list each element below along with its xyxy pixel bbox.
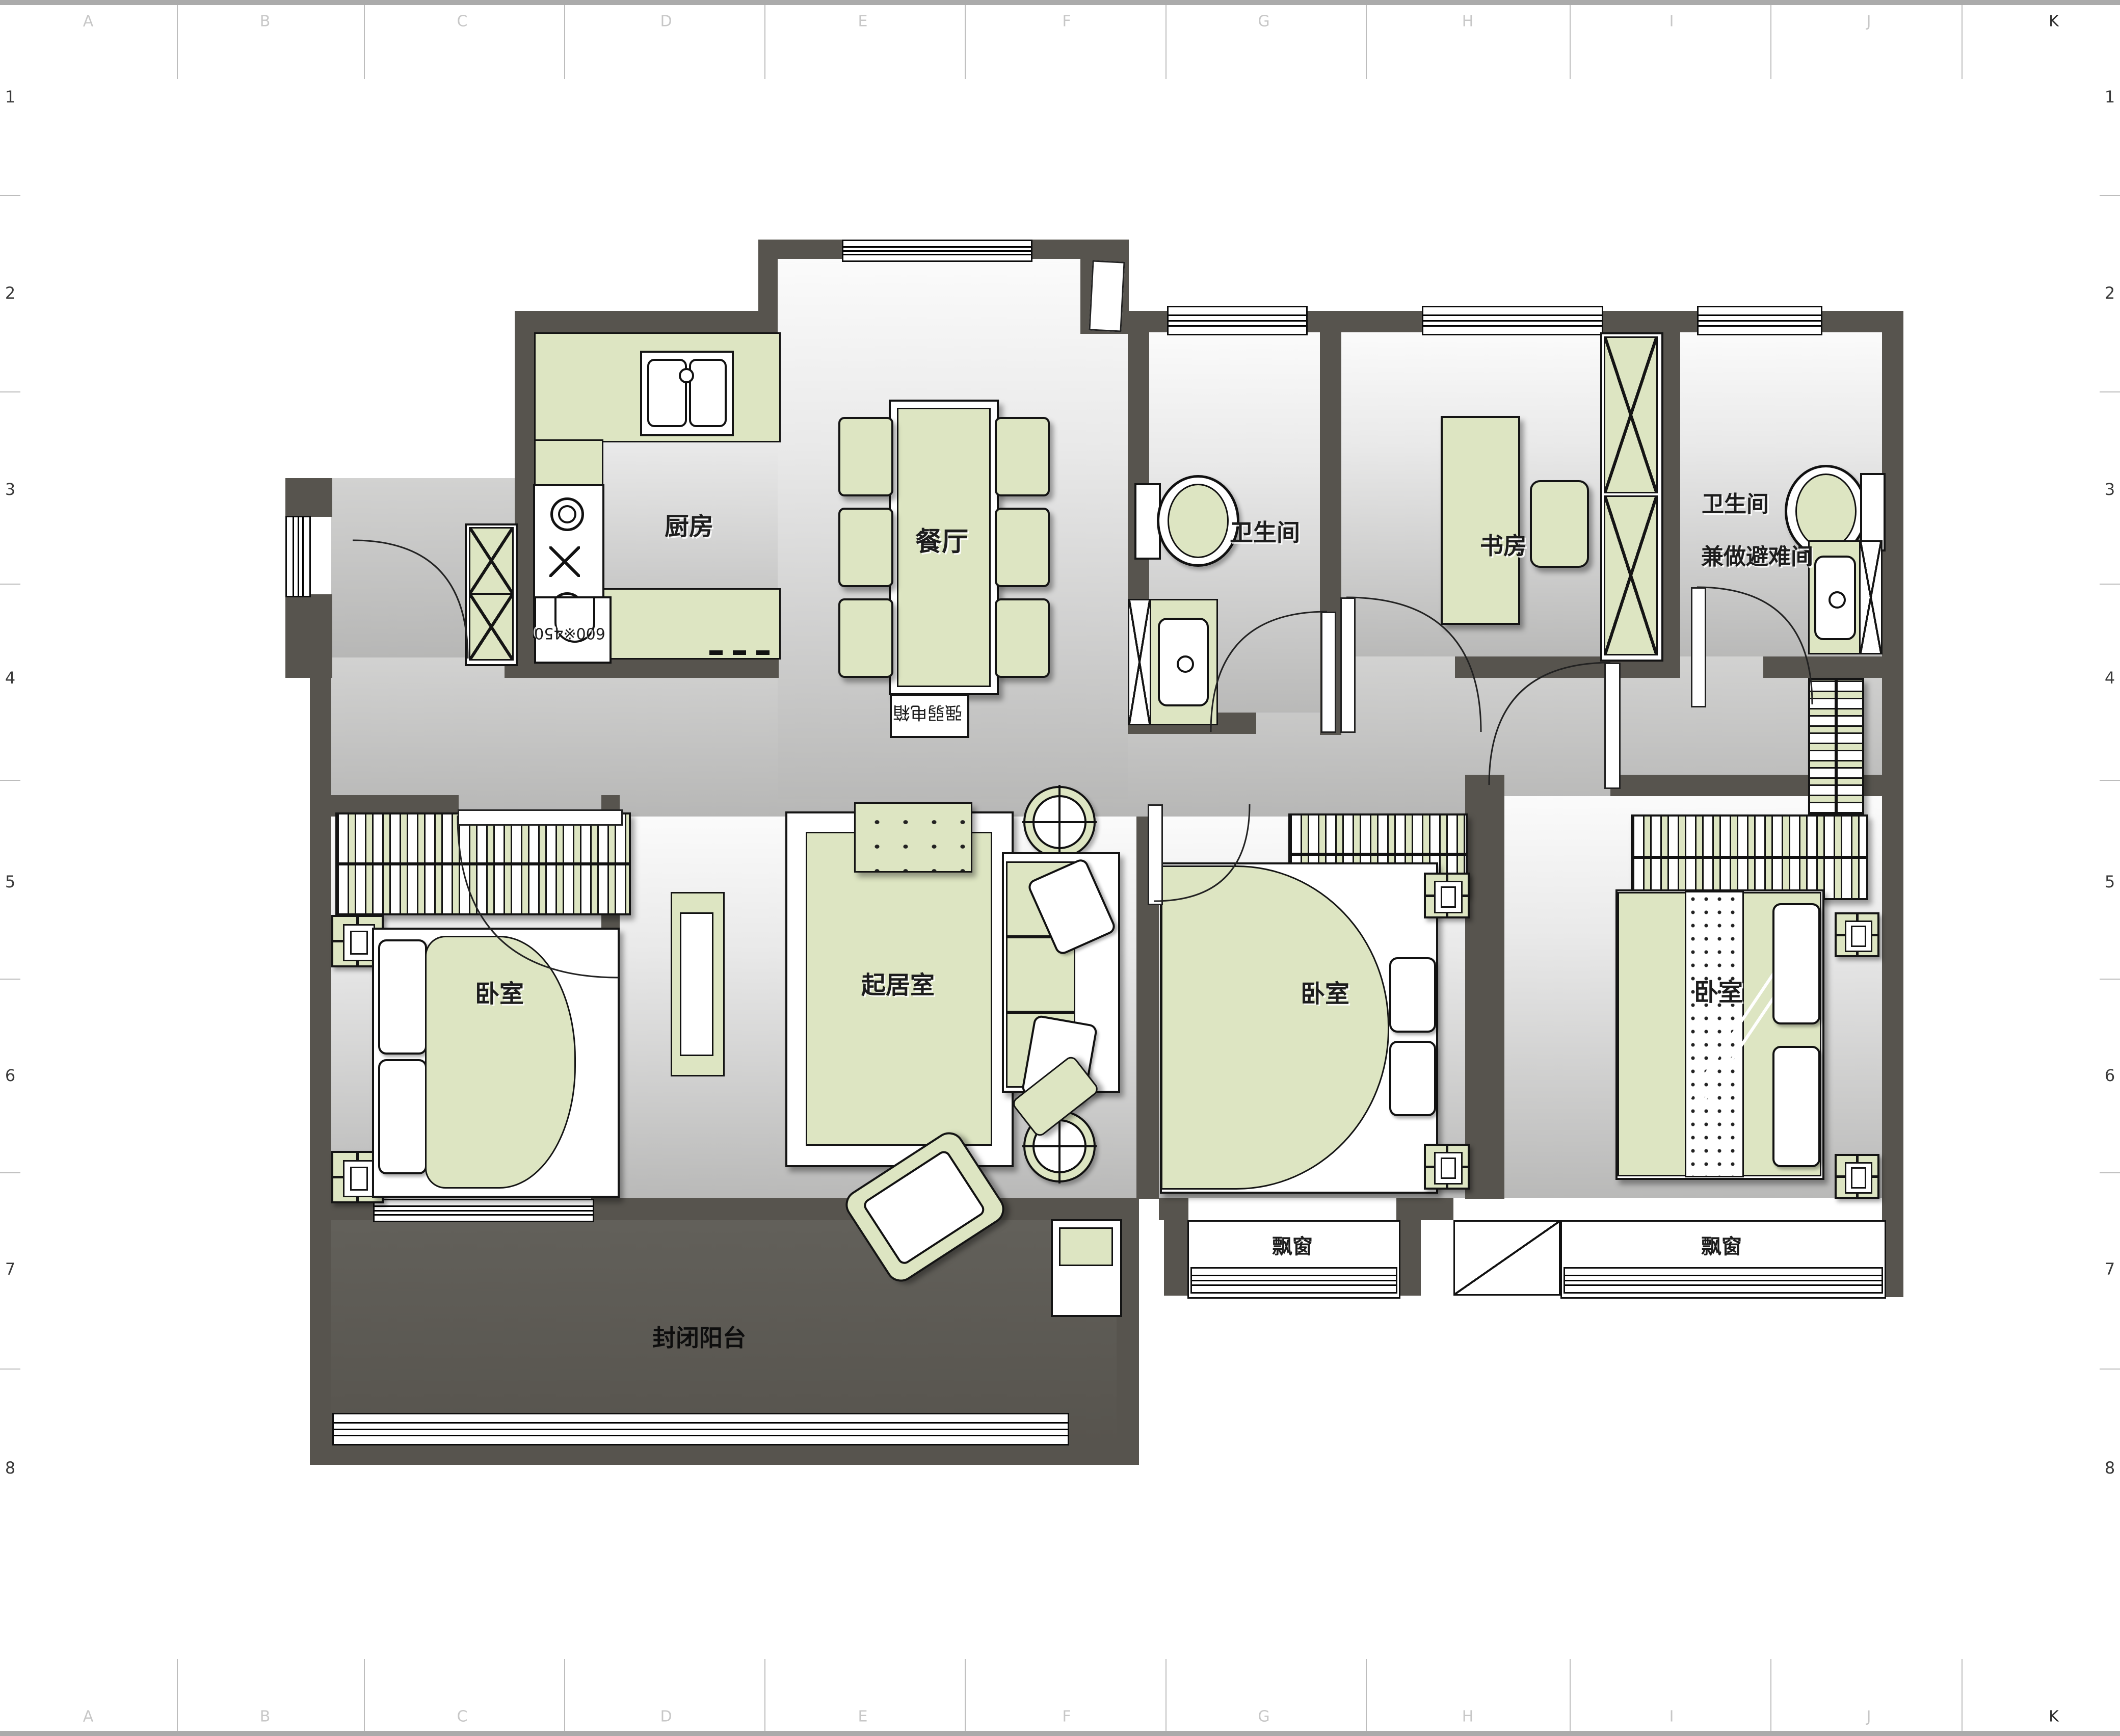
door-arc <box>353 540 468 659</box>
grid-letter-bottom: C <box>457 1708 468 1726</box>
grid-tick <box>2100 391 2120 392</box>
door-arc <box>1346 597 1481 732</box>
grid-tick <box>364 1659 365 1731</box>
grid-letter-top: F <box>1062 13 1071 31</box>
grid-letter-bottom: G <box>1258 1708 1269 1726</box>
grid-tick <box>965 5 966 79</box>
grid-tick <box>0 780 20 781</box>
grid-number-right: 8 <box>2105 1458 2115 1478</box>
grid-number-right: 5 <box>2105 872 2115 891</box>
grid-letter-bottom: A <box>83 1708 94 1726</box>
grid-tick <box>0 391 20 392</box>
grid-letter-bottom: I <box>1669 1708 1674 1726</box>
grid-letter-bottom: D <box>660 1708 672 1726</box>
grid-tick <box>764 1659 765 1731</box>
grid-tick <box>1366 1659 1367 1731</box>
grid-tick <box>965 1659 966 1731</box>
grid-number-left: 6 <box>5 1066 15 1085</box>
grid-tick <box>364 5 365 79</box>
grid-letter-bottom: H <box>1462 1708 1474 1726</box>
grid-tick <box>0 1172 20 1173</box>
grid-tick <box>0 584 20 585</box>
grid-tick <box>1570 1659 1571 1731</box>
grid-number-left: 5 <box>5 872 15 891</box>
grid-number-left: 4 <box>5 668 15 688</box>
grid-number-right: 4 <box>2105 668 2115 688</box>
grid-tick <box>0 979 20 980</box>
grid-tick <box>1962 5 1963 79</box>
grid-tick <box>764 5 765 79</box>
grid-letter-top: J <box>1867 13 1871 31</box>
grid-number-right: 7 <box>2105 1259 2115 1279</box>
grid-letter-top: E <box>858 13 868 31</box>
grid-letter-bottom: F <box>1062 1708 1071 1726</box>
grid-number-left: 3 <box>5 480 15 499</box>
grid-number-left: 2 <box>5 283 15 303</box>
grid-tick <box>1770 1659 1771 1731</box>
grid-tick <box>1165 1659 1167 1731</box>
grid-tick <box>1770 5 1771 79</box>
floorplan-canvas: 600※450 厨房 餐厅 卫生间 书房 卫生间 兼做避难间 强弱电箱 卧室 <box>0 0 2120 1736</box>
door-arc <box>1489 663 1610 785</box>
door-arc <box>458 816 619 978</box>
door-arc <box>1697 587 1812 704</box>
grid-number-right: 6 <box>2105 1066 2115 1085</box>
grid-letter-bottom: E <box>858 1708 868 1726</box>
grid-tick <box>564 1659 565 1731</box>
grid-tick <box>177 1659 178 1731</box>
grid-letter-top: D <box>660 13 672 31</box>
grid-letter-bottom: J <box>1867 1708 1871 1726</box>
grid-letter-top: K <box>2049 13 2059 31</box>
grid-letter-top: I <box>1669 13 1674 31</box>
door-arcs <box>0 0 2120 1736</box>
grid-letter-top: C <box>457 13 468 31</box>
grid-number-right: 1 <box>2105 87 2115 107</box>
grid-tick <box>1366 5 1367 79</box>
grid-letter-top: G <box>1258 13 1269 31</box>
grid-tick <box>2100 195 2120 196</box>
grid-letter-top: H <box>1462 13 1474 31</box>
grid-number-left: 1 <box>5 87 15 107</box>
door-arc <box>1154 804 1250 901</box>
grid-tick <box>2100 1172 2120 1173</box>
grid-tick <box>564 5 565 79</box>
grid-tick <box>1962 1659 1963 1731</box>
grid-tick <box>2100 780 2120 781</box>
grid-tick <box>2100 1369 2120 1370</box>
grid-number-left: 8 <box>5 1458 15 1478</box>
grid-tick <box>0 195 20 196</box>
grid-tick <box>2100 584 2120 585</box>
grid-number-left: 7 <box>5 1259 15 1279</box>
grid-tick <box>1165 5 1167 79</box>
grid-number-right: 2 <box>2105 283 2115 303</box>
grid-tick <box>0 1369 20 1370</box>
grid-letter-top: A <box>83 13 94 31</box>
grid-tick <box>1570 5 1571 79</box>
grid-letter-bottom: B <box>260 1708 271 1726</box>
grid-tick <box>177 5 178 79</box>
grid-letter-bottom: K <box>2049 1708 2059 1726</box>
grid-number-right: 3 <box>2105 480 2115 499</box>
grid-letter-top: B <box>260 13 271 31</box>
door-arc <box>1211 612 1327 732</box>
grid-tick <box>2100 979 2120 980</box>
